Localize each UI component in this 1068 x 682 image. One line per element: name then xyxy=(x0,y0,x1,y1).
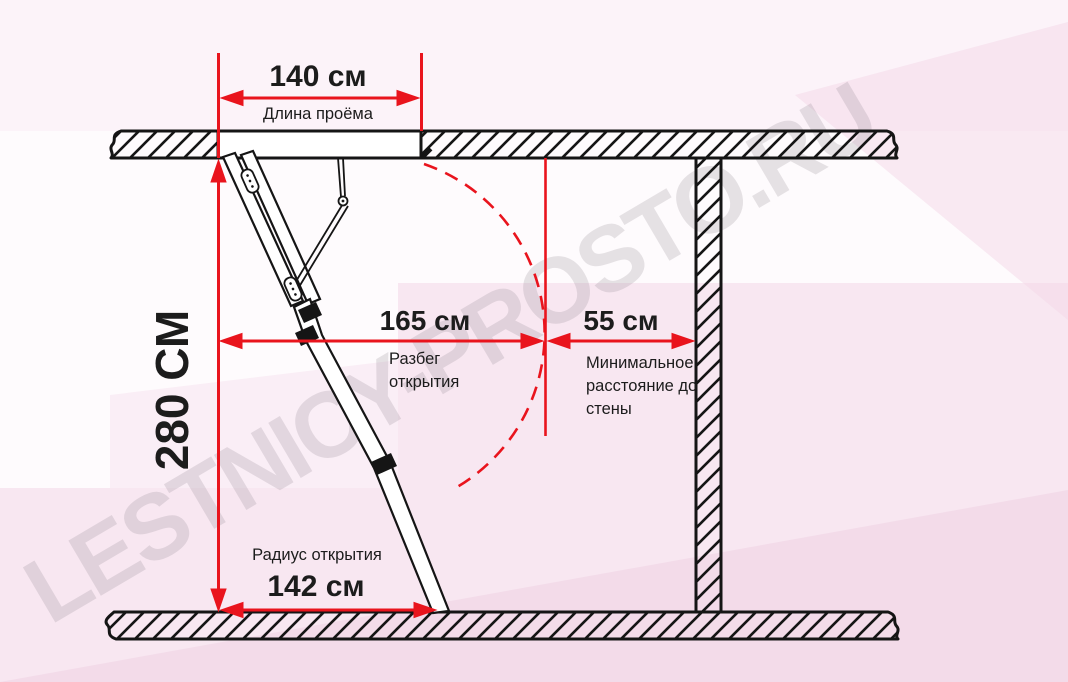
ceiling-right xyxy=(421,131,897,158)
dim-ceiling-height-value: 280 СМ xyxy=(146,295,198,485)
floor xyxy=(106,612,898,639)
spring-rod xyxy=(338,158,345,197)
spring-pivot-pin xyxy=(342,200,345,203)
dim-span-arrow-right xyxy=(521,334,543,349)
ceiling-left xyxy=(111,131,218,158)
dim-span-arrow-left xyxy=(220,334,242,349)
dim-wall-distance-label: Минимальное расстояние до стены xyxy=(586,352,718,420)
dim-wall-distance-value: 55 см xyxy=(551,305,691,337)
dim-opening-length-value: 140 см xyxy=(233,60,403,94)
dim-opening-span-label: Разбег открытия xyxy=(389,348,484,394)
dim-opening-span-value: 165 см xyxy=(345,305,505,337)
dim-opening-length-label: Длина проёма xyxy=(228,103,408,126)
dim-opening-radius-label: Радиус открытия xyxy=(237,544,397,567)
dim-opening-radius-value: 142 см xyxy=(236,570,396,604)
dim-height-arrow-top xyxy=(211,160,226,182)
attic-ladder-dimension-diagram: LESTNICY-PROSTO.RU xyxy=(0,0,1068,682)
dim-height-arrow-bottom xyxy=(211,589,226,611)
